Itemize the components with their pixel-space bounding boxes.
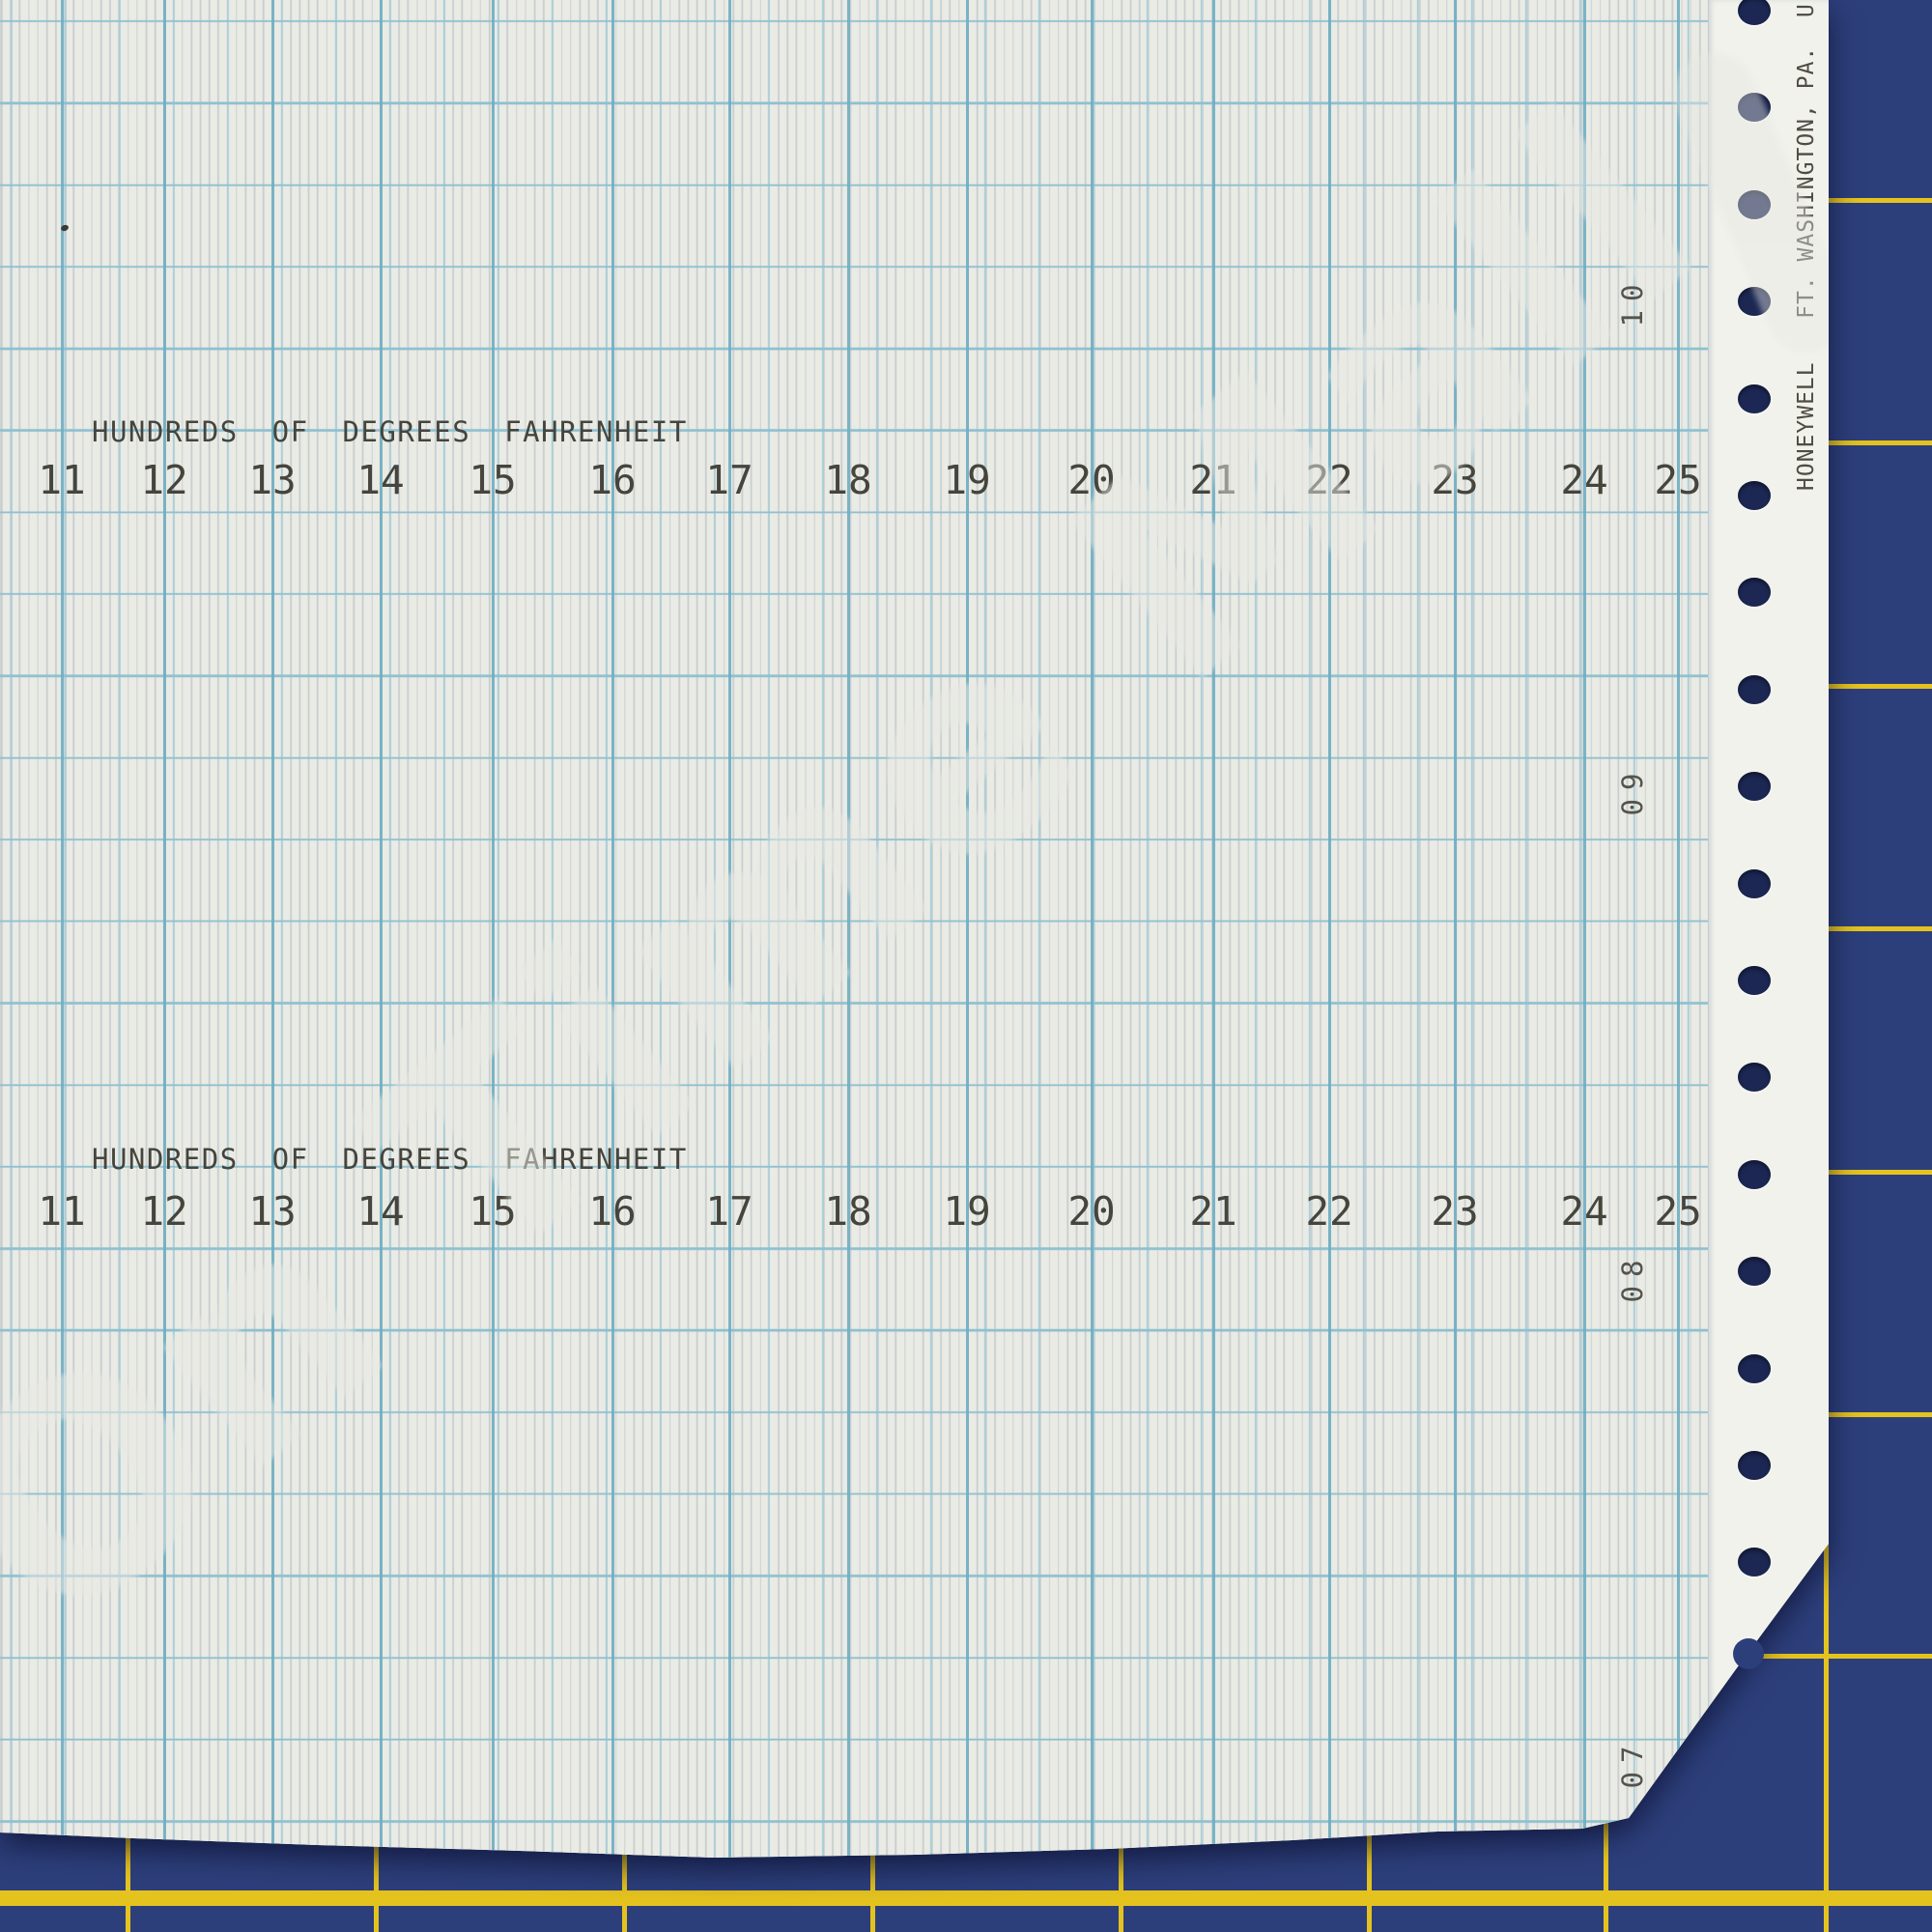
scale-tick-label: 16 [588,458,636,502]
scale-tick-label: 17 [705,458,753,502]
tractor-feed-hole [1738,384,1771,413]
scale-tick-label: 24 [1560,1189,1607,1234]
scale-tick-label: 12 [140,458,187,502]
grid-major-vline [380,0,383,1932]
grid-major-vline [1091,0,1094,1932]
scale-tick-label: 23 [1431,1189,1478,1234]
scale-tick-label: 25 [1654,1189,1701,1234]
product-photo: HONEYWELL FT. WASHINGTON, PA. U HUNDREDS… [0,0,1932,1932]
scale-tick-label: 24 [1560,458,1607,502]
tractor-feed-hole [1738,1354,1771,1383]
page-number: 09 [1616,765,1649,816]
grid-major-vline [1212,0,1215,1932]
tractor-feed-hole [1738,481,1771,510]
page-number: 08 [1616,1252,1649,1303]
tractor-feed-hole [1738,1257,1771,1286]
tractor-feed-hole [1738,869,1771,898]
scale-tick-label: 21 [1189,1189,1236,1234]
scale-tick-label: 13 [248,458,296,502]
scale-tick-label: 18 [824,458,871,502]
scale-tick-label: 11 [38,1189,85,1234]
scale-tick-label: 19 [943,1189,990,1234]
tractor-feed-hole [1738,675,1771,704]
scale-tick-label: 19 [943,458,990,502]
corner-half-hole-notch [1733,1638,1764,1669]
scale-tick-label: 14 [356,458,404,502]
grid-major-vline [163,0,166,1932]
honeywell-chart-paper: HONEYWELL FT. WASHINGTON, PA. U HUNDREDS… [0,0,1932,1932]
grid-major-vline [966,0,969,1932]
tractor-feed-hole [1738,966,1771,995]
scale-tick-label: 22 [1305,1189,1352,1234]
scale-tick-label: 25 [1654,458,1701,502]
scale-tick-label: 18 [824,1189,871,1234]
page-number: 07 [1616,1738,1649,1789]
grid-major-vline [271,0,274,1932]
chart-paper-shadow-wrap: HONEYWELL FT. WASHINGTON, PA. U HUNDREDS… [0,0,1932,1932]
tractor-feed-hole [1738,772,1771,801]
tractor-feed-hole [1738,1451,1771,1480]
scale-tick-label: 20 [1067,1189,1115,1234]
tractor-feed-hole [1738,1160,1771,1189]
scale-tick-label: 11 [38,458,85,502]
scale-tick-label: 17 [705,1189,753,1234]
scale-title: HUNDREDS OF DEGREES FAHRENHEIT [92,415,688,448]
scale-tick-label: 15 [469,458,516,502]
